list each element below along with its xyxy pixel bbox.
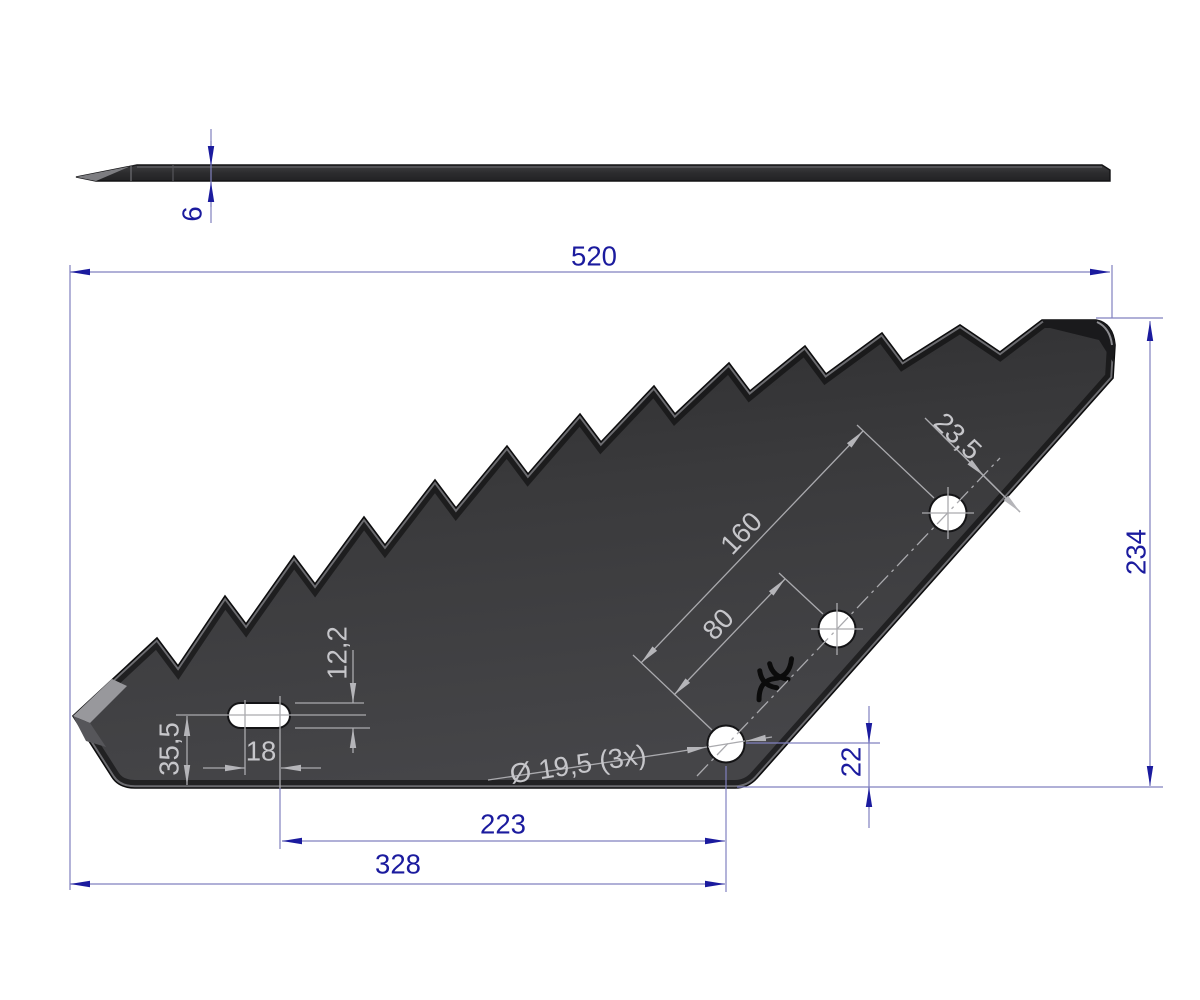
dim-left-edge-to-hole-label: 328 [375,849,421,880]
blade-drawing: 6 520 [0,0,1200,1000]
dim-slot-pitch-label: 18 [246,736,277,767]
blade-main-view [73,320,1115,788]
technical-drawing-page: 6 520 [0,0,1200,1000]
dim-slot-center-to-bottom-label: 35,5 [154,722,185,776]
dim-hole-to-bottom-label: 22 [836,747,867,778]
dim-thickness-label: 6 [177,206,208,221]
dim-overall-width-label: 520 [571,241,617,272]
blade-side-view [76,165,1110,181]
dim-slot-to-hole-label: 223 [480,809,526,840]
dim-slot-width-label: 12,2 [322,626,353,680]
dim-overall-height-label: 234 [1121,529,1152,575]
dim-left-edge-to-hole: 328 [70,849,725,885]
